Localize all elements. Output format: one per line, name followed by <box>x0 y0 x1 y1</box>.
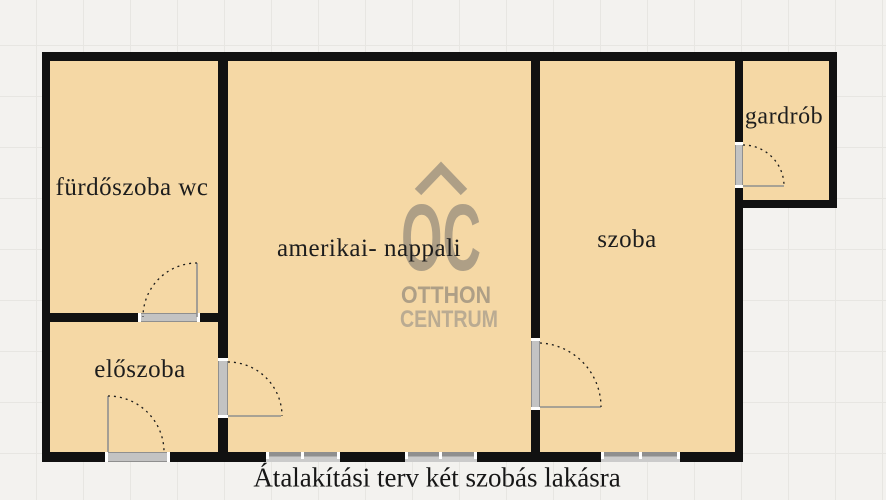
door-swing-bedroom <box>540 343 601 407</box>
room-label-hall: előszoba <box>94 356 185 384</box>
caption: Átalakítási terv két szobás lakásra <box>253 463 620 494</box>
door-swing-bathroom <box>143 263 197 317</box>
room-label-bedroom: szoba <box>597 226 656 254</box>
door-swing-wardrobe <box>743 145 784 186</box>
door-swing-hall <box>228 362 282 416</box>
room-label-living: amerikai- nappali <box>277 235 461 263</box>
floorplan-canvas: OC OTTHON CENTRUM <box>0 0 886 500</box>
room-label-bathroom: fürdőszoba wc <box>56 174 209 202</box>
door-swing-entrance <box>108 396 164 452</box>
room-label-wardrobe: gardrób <box>745 104 823 131</box>
